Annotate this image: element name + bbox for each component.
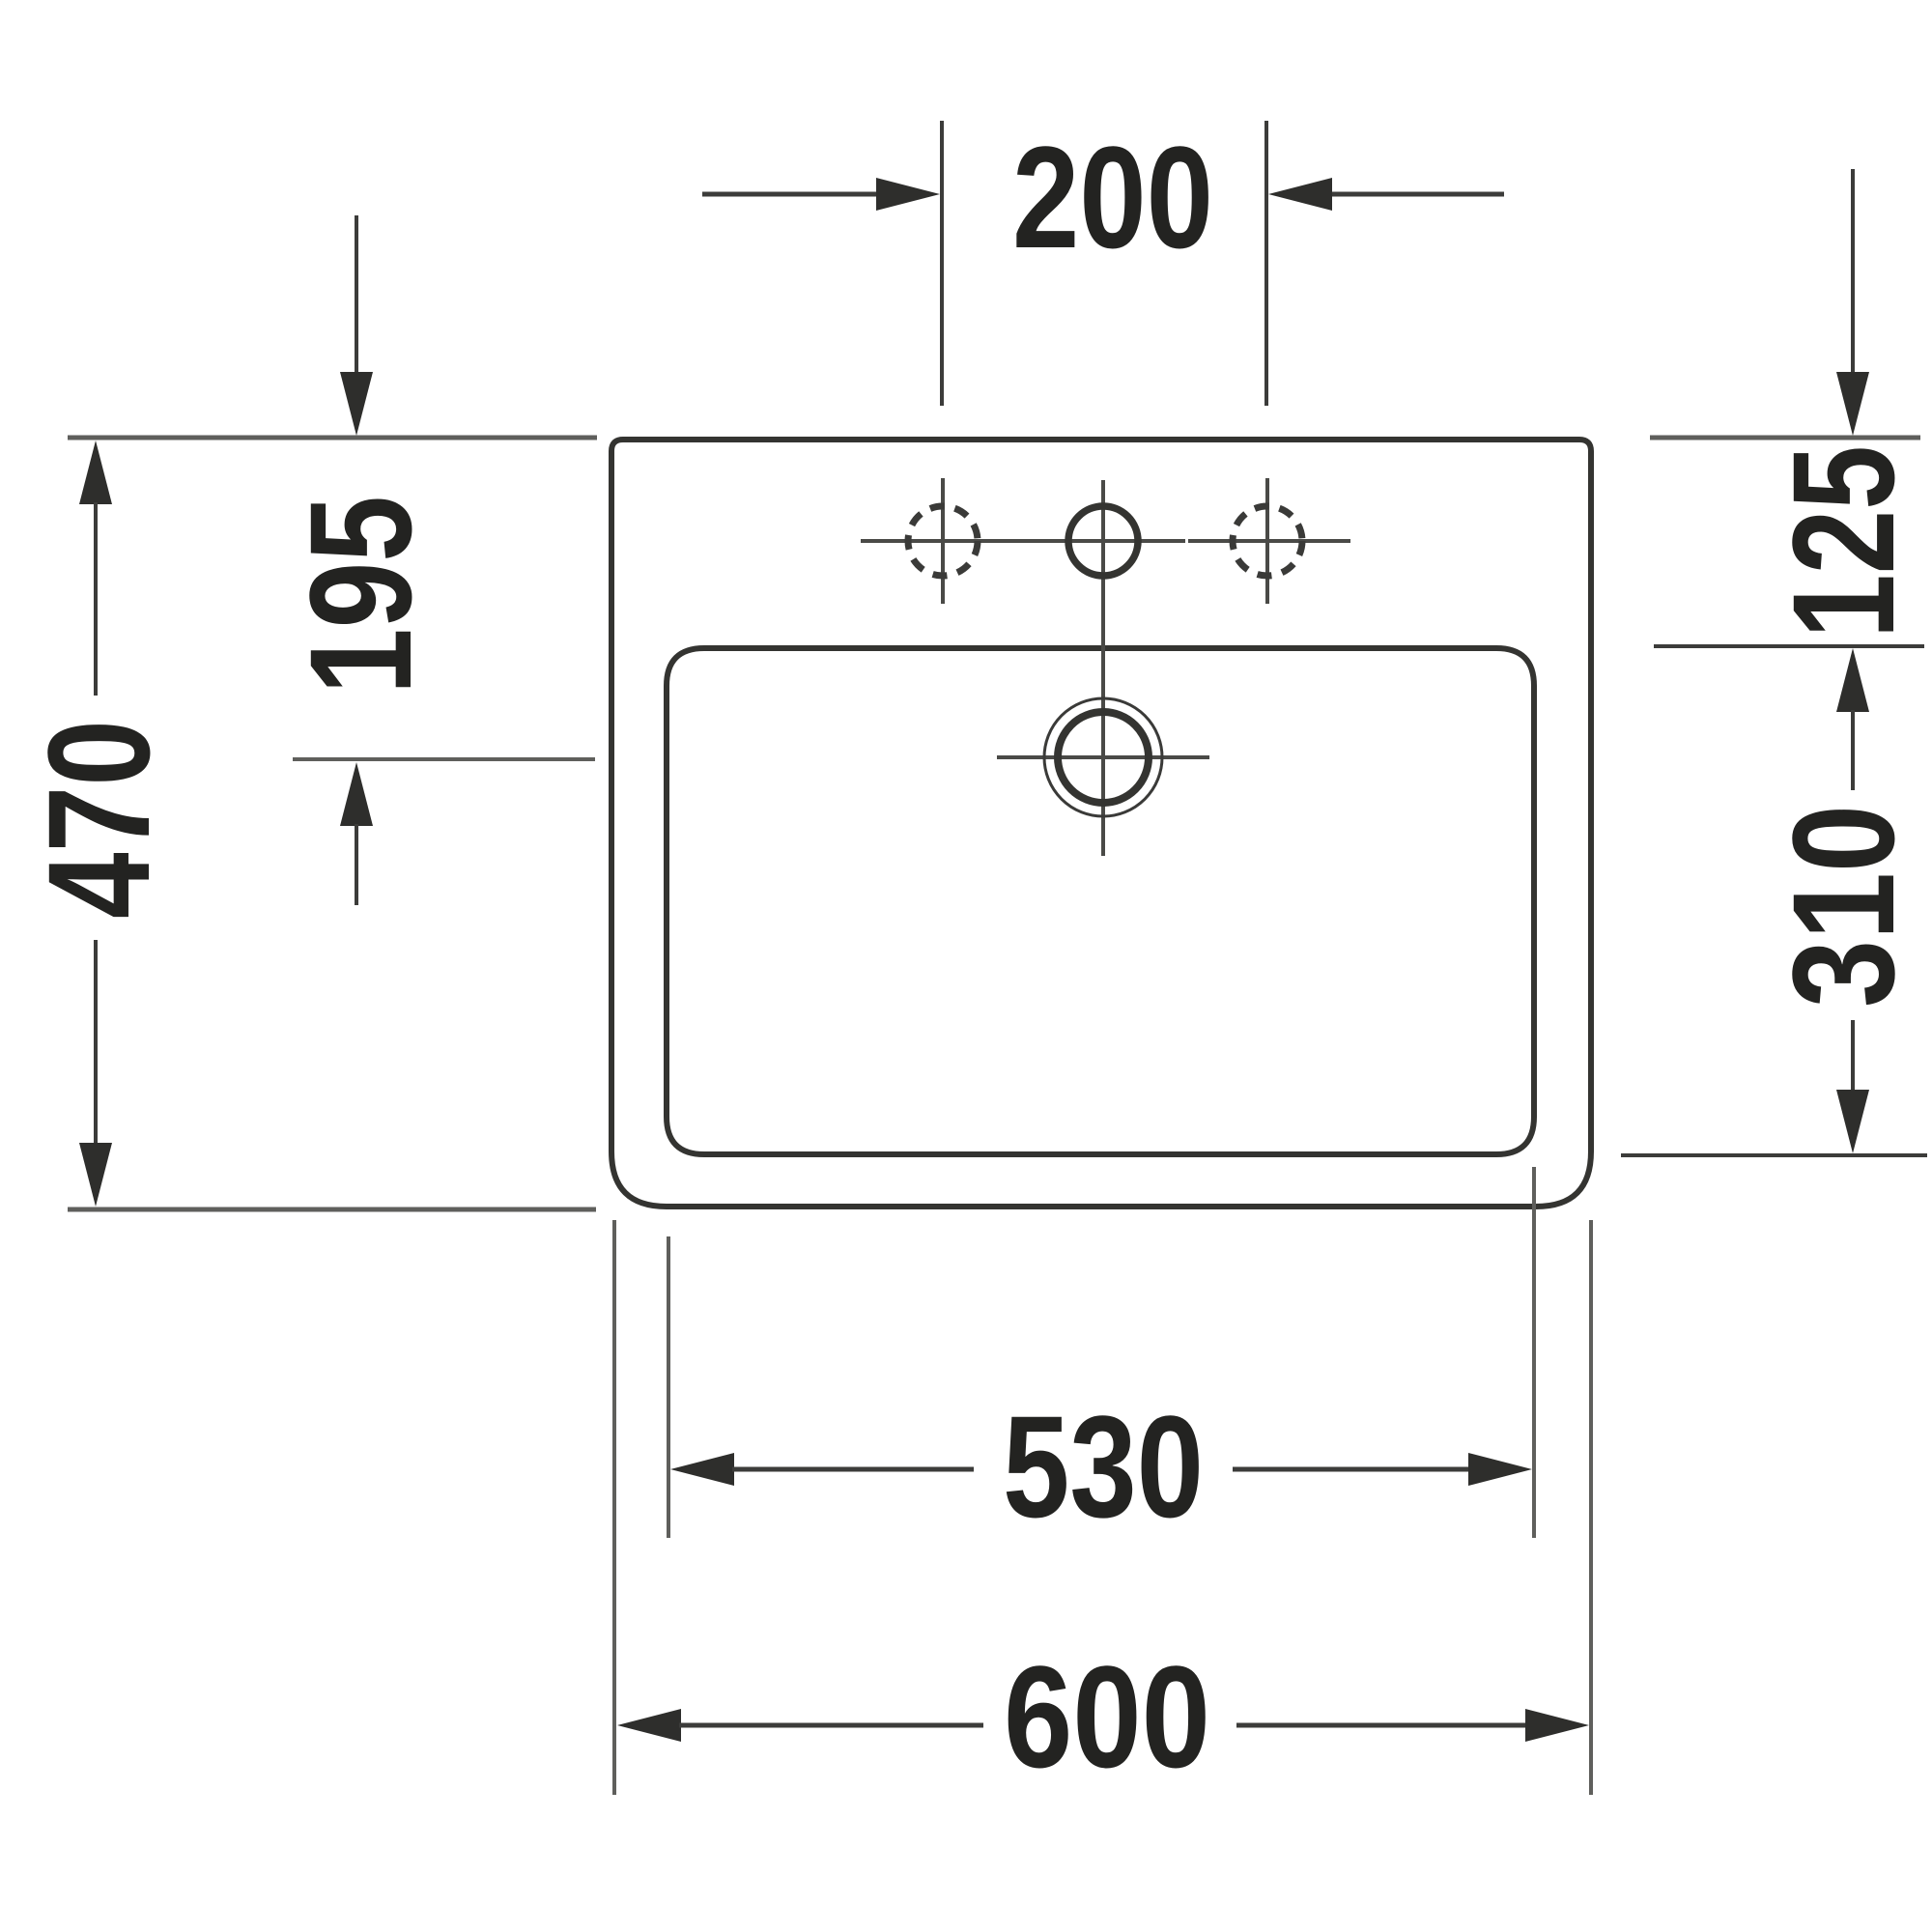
- dim-470-arrow-bottom: [79, 1143, 112, 1207]
- extension-lines: [68, 121, 1927, 1795]
- dim-600-arrow-right: [1525, 1709, 1589, 1742]
- bowl-inner-outline: [667, 648, 1534, 1154]
- dim-label-bowl-depth: 310: [1762, 805, 1924, 1008]
- drawing-canvas: 200 470 195 125 310 530 60: [0, 0, 1932, 1932]
- dim-310-arrow-top: [1836, 648, 1869, 712]
- dim-530-arrow-left: [670, 1453, 734, 1486]
- dim-label-bowl-width: 530: [1003, 1385, 1204, 1548]
- dim-470-arrow-top: [79, 440, 112, 504]
- dim-overall-width: 600: [617, 1635, 1589, 1798]
- dim-200-arrow-right: [1268, 178, 1332, 211]
- dim-600-arrow-left: [617, 1709, 681, 1742]
- dim-195-arrow-top: [340, 372, 373, 436]
- dim-200-arrow-left: [876, 178, 940, 211]
- dim-hole-spacing: 200: [702, 116, 1504, 278]
- dim-label-overall-depth: 470: [17, 720, 180, 919]
- dim-530-arrow-right: [1468, 1453, 1532, 1486]
- dim-rim-to-bowl-and-bowl-depth: 125 310: [1762, 169, 1924, 1153]
- dim-label-hole-spacing: 200: [1012, 116, 1213, 278]
- dim-label-rim-to-overflow: 195: [279, 496, 441, 695]
- dim-310-arrow-bottom: [1836, 1090, 1869, 1153]
- dim-rim-to-overflow: 195: [279, 215, 441, 905]
- dim-label-rim-to-bowl: 125: [1762, 445, 1924, 639]
- dim-195-arrow-bottom: [340, 762, 373, 826]
- washbasin-dimension-drawing: 200 470 195 125 310 530 60: [0, 0, 1932, 1932]
- dim-125-arrow-top: [1836, 372, 1869, 436]
- dim-bowl-width: 530: [670, 1385, 1532, 1548]
- dim-label-overall-width: 600: [1004, 1635, 1210, 1798]
- dim-overall-depth: 470: [17, 440, 180, 1207]
